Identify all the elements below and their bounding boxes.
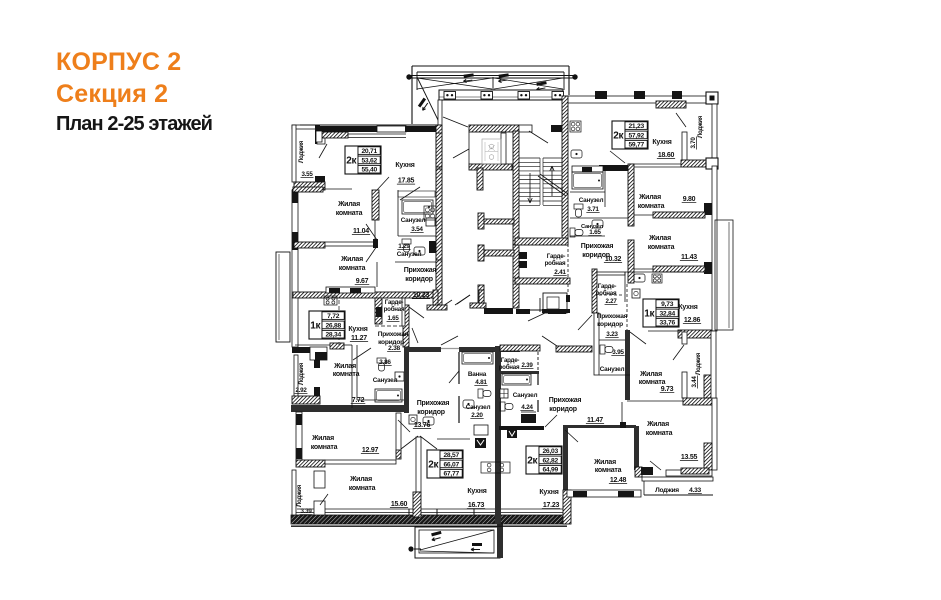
svg-text:1.65: 1.65 <box>387 315 399 322</box>
svg-text:комната: комната <box>311 444 338 451</box>
svg-text:робная: робная <box>545 260 566 267</box>
svg-text:Лоджия: Лоджия <box>298 140 305 163</box>
svg-text:Прихожая: Прихожая <box>597 313 628 320</box>
svg-text:Жилая: Жилая <box>593 459 616 466</box>
svg-text:4.33: 4.33 <box>689 487 701 494</box>
svg-text:Санузел: Санузел <box>600 366 625 373</box>
svg-text:2к: 2к <box>428 460 439 471</box>
svg-text:3.70: 3.70 <box>690 137 697 149</box>
svg-text:комната: комната <box>648 244 675 251</box>
svg-text:11.27: 11.27 <box>351 335 367 342</box>
svg-text:комната: комната <box>336 210 363 217</box>
svg-text:Гарде-: Гарде- <box>501 357 520 364</box>
svg-text:11.43: 11.43 <box>681 254 697 261</box>
svg-text:12.97: 12.97 <box>362 447 379 454</box>
svg-text:21,23: 21,23 <box>628 123 644 130</box>
svg-text:Прихожая: Прихожая <box>581 243 614 250</box>
svg-text:17.23: 17.23 <box>543 502 560 509</box>
svg-text:11.04: 11.04 <box>353 228 369 235</box>
svg-text:12.86: 12.86 <box>684 317 701 324</box>
svg-text:комната: комната <box>646 430 673 437</box>
svg-text:10.23: 10.23 <box>413 292 430 299</box>
svg-text:Кухня: Кухня <box>467 488 486 495</box>
svg-text:2к: 2к <box>613 131 624 142</box>
svg-text:Санузел: Санузел <box>466 404 491 411</box>
svg-text:Лоджия: Лоджия <box>655 487 679 494</box>
svg-text:Жилая: Жилая <box>638 194 661 201</box>
svg-text:1к: 1к <box>310 321 321 332</box>
svg-text:Кухня: Кухня <box>395 162 414 169</box>
svg-text:2.27: 2.27 <box>605 298 617 305</box>
svg-text:10.32: 10.32 <box>605 256 622 263</box>
svg-text:3.23: 3.23 <box>606 331 618 338</box>
svg-text:Санузел: Санузел <box>373 377 398 384</box>
svg-text:2к: 2к <box>346 156 357 167</box>
svg-text:26,03: 26,03 <box>542 448 558 455</box>
svg-text:КОРПУС 2: КОРПУС 2 <box>56 48 181 76</box>
svg-text:комната: комната <box>339 265 366 272</box>
svg-text:Санузел: Санузел <box>513 392 538 399</box>
svg-text:Жилая: Жилая <box>333 363 356 370</box>
svg-text:комната: комната <box>638 203 665 210</box>
svg-text:Кухня: Кухня <box>678 304 697 311</box>
svg-text:3.86: 3.86 <box>379 359 391 366</box>
svg-text:Жилая: Жилая <box>646 421 669 428</box>
svg-text:Лоджия: Лоджия <box>296 484 303 507</box>
svg-text:33,76: 33,76 <box>659 320 675 327</box>
svg-text:Санузел: Санузел <box>579 197 604 204</box>
svg-text:3.95: 3.95 <box>612 349 624 356</box>
svg-text:Жилая: Жилая <box>340 256 363 263</box>
svg-text:15.60: 15.60 <box>391 501 408 508</box>
svg-text:Жилая: Жилая <box>311 435 334 442</box>
svg-text:Прихожая: Прихожая <box>549 397 582 404</box>
svg-text:Секция 2: Секция 2 <box>56 80 168 108</box>
svg-text:18.60: 18.60 <box>658 152 675 159</box>
svg-text:3.55: 3.55 <box>301 171 313 178</box>
svg-text:32,84: 32,84 <box>659 310 675 317</box>
svg-text:Ванна: Ванна <box>468 371 487 378</box>
svg-text:1к: 1к <box>644 309 655 320</box>
svg-text:53,62: 53,62 <box>361 157 377 164</box>
svg-text:2.39: 2.39 <box>521 362 533 369</box>
svg-text:17.85: 17.85 <box>398 178 415 185</box>
svg-text:26,88: 26,88 <box>325 322 341 329</box>
svg-text:коридор: коридор <box>405 276 433 283</box>
svg-text:7,72: 7,72 <box>327 313 340 320</box>
svg-text:Гарде-: Гарде- <box>547 253 566 260</box>
svg-text:Лоджия: Лоджия <box>697 115 704 138</box>
svg-text:Санузел: Санузел <box>397 251 422 258</box>
svg-text:1.65: 1.65 <box>589 229 601 236</box>
svg-text:коридор: коридор <box>597 321 623 328</box>
svg-text:62,82: 62,82 <box>542 457 558 464</box>
svg-text:7.72: 7.72 <box>352 397 365 404</box>
svg-text:Жилая: Жилая <box>337 201 360 208</box>
svg-text:13.76: 13.76 <box>414 422 431 429</box>
svg-text:Жилая: Жилая <box>349 476 372 483</box>
svg-text:комната: комната <box>349 485 376 492</box>
svg-text:коридор: коридор <box>549 406 577 413</box>
svg-text:28,57: 28,57 <box>443 452 459 459</box>
svg-text:комната: комната <box>639 379 666 386</box>
svg-text:13.55: 13.55 <box>681 454 698 461</box>
svg-text:9.73: 9.73 <box>661 386 674 393</box>
svg-text:2.92: 2.92 <box>295 387 307 394</box>
svg-text:11.47: 11.47 <box>587 417 603 424</box>
svg-text:комната: комната <box>333 371 360 378</box>
svg-text:2.38: 2.38 <box>388 345 400 352</box>
svg-text:Прихожая: Прихожая <box>417 400 450 407</box>
svg-text:робная: робная <box>499 364 520 371</box>
svg-text:67,77: 67,77 <box>443 471 459 478</box>
svg-text:2к: 2к <box>527 456 538 467</box>
svg-text:Лоджия: Лоджия <box>298 362 305 385</box>
svg-text:59,77: 59,77 <box>628 142 644 149</box>
svg-text:План 2-25 этажей: План 2-25 этажей <box>56 113 212 135</box>
svg-text:робная: робная <box>596 290 617 297</box>
svg-text:4.81: 4.81 <box>475 379 487 386</box>
svg-text:3.39: 3.39 <box>300 508 312 515</box>
svg-text:4.24: 4.24 <box>521 404 533 411</box>
svg-text:Гарде-: Гарде- <box>385 299 404 306</box>
svg-text:Санузел: Санузел <box>401 217 426 224</box>
svg-text:55,40: 55,40 <box>361 167 377 174</box>
svg-text:20,71: 20,71 <box>361 148 377 155</box>
svg-text:Жилая: Жилая <box>648 235 671 242</box>
svg-text:12.48: 12.48 <box>610 477 627 484</box>
svg-text:Кухня: Кухня <box>539 489 558 496</box>
svg-text:2.41: 2.41 <box>554 269 566 276</box>
svg-text:66,07: 66,07 <box>443 461 459 468</box>
svg-text:Жилая: Жилая <box>639 371 662 378</box>
svg-text:9.80: 9.80 <box>683 196 696 203</box>
svg-text:комната: комната <box>595 467 622 474</box>
svg-text:9.67: 9.67 <box>356 278 369 285</box>
svg-text:16.73: 16.73 <box>468 502 485 509</box>
svg-text:28,34: 28,34 <box>325 332 341 339</box>
svg-text:1.29: 1.29 <box>398 243 410 250</box>
svg-text:3.44: 3.44 <box>691 376 698 388</box>
svg-text:3.54: 3.54 <box>411 226 423 233</box>
svg-text:коридор: коридор <box>417 409 445 416</box>
svg-text:Лоджия: Лоджия <box>695 352 702 375</box>
svg-text:робная: робная <box>384 306 405 313</box>
svg-text:9,73: 9,73 <box>661 301 674 308</box>
svg-text:64,99: 64,99 <box>542 467 558 474</box>
svg-text:Прихожая: Прихожая <box>404 267 437 274</box>
svg-text:Кухня: Кухня <box>348 326 367 333</box>
svg-text:Прихожая: Прихожая <box>378 331 409 338</box>
svg-text:2.20: 2.20 <box>471 412 483 419</box>
svg-text:57,92: 57,92 <box>628 132 644 139</box>
svg-text:3.71: 3.71 <box>587 206 599 213</box>
svg-text:Гарде-: Гарде- <box>598 283 617 290</box>
svg-text:Кухня: Кухня <box>652 139 671 146</box>
